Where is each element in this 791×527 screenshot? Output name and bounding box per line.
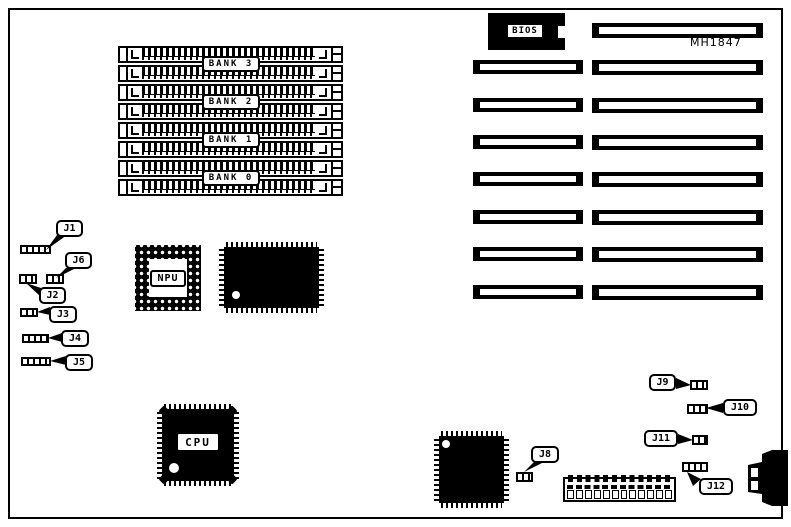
jumper-label-J11: J11 bbox=[644, 430, 678, 447]
jumper-J12-pins bbox=[682, 462, 708, 472]
power-connector-pins bbox=[568, 475, 671, 482]
bios-notch bbox=[558, 26, 565, 38]
expansion-slot bbox=[473, 210, 583, 224]
bios-label: BIOS bbox=[508, 25, 542, 37]
expansion-slot bbox=[473, 98, 583, 112]
jumper-J5-pins bbox=[21, 357, 51, 366]
pin1-dot bbox=[442, 440, 450, 448]
expansion-slot bbox=[592, 172, 763, 187]
bank-label: BANK 1 bbox=[202, 132, 260, 148]
jumper-J10-pins bbox=[687, 404, 708, 414]
jumper-label-J2: J2 bbox=[39, 287, 66, 304]
pin1-dot bbox=[169, 463, 179, 473]
power-connector-bar bbox=[567, 485, 672, 489]
jumper-J8-pins bbox=[516, 472, 533, 482]
expansion-slot bbox=[473, 135, 583, 149]
power-connector bbox=[563, 477, 676, 502]
qfp-chip bbox=[434, 431, 509, 508]
keyboard-connector-notch bbox=[751, 481, 758, 490]
bank-label: BANK 2 bbox=[202, 94, 260, 110]
jumper-J4-pins bbox=[22, 334, 49, 343]
qfp-chip bbox=[219, 242, 324, 313]
expansion-slot bbox=[473, 172, 583, 186]
expansion-slot bbox=[473, 247, 583, 261]
cpu-chip: CPU bbox=[157, 404, 239, 486]
keyboard-connector-body bbox=[748, 450, 788, 506]
jumper-label-J4: J4 bbox=[61, 330, 89, 347]
jumper-label-J1: J1 bbox=[56, 220, 83, 237]
jumper-J1-pins bbox=[20, 245, 51, 254]
bank-label: BANK 0 bbox=[202, 170, 260, 186]
expansion-slot bbox=[592, 23, 763, 38]
jumper-J3-pins bbox=[20, 308, 38, 317]
expansion-slot bbox=[473, 285, 583, 299]
npu-socket: NPU bbox=[135, 245, 201, 311]
jumper-label-J5: J5 bbox=[65, 354, 93, 371]
expansion-slot bbox=[592, 210, 763, 225]
expansion-slot bbox=[592, 98, 763, 113]
jumper-label-J6: J6 bbox=[65, 252, 92, 269]
jumper-label-J8: J8 bbox=[531, 446, 559, 463]
keyboard-connector bbox=[748, 450, 788, 506]
jumper-J9-pins bbox=[690, 380, 708, 390]
power-connector-cells bbox=[567, 490, 672, 499]
jumper-label-J12: J12 bbox=[699, 478, 733, 495]
expansion-slot bbox=[592, 247, 763, 262]
expansion-slot bbox=[592, 60, 763, 75]
cpu-label: CPU bbox=[176, 432, 220, 452]
bios-chip: BIOS bbox=[488, 13, 565, 50]
expansion-slot bbox=[592, 285, 763, 300]
jumper-label-J9: J9 bbox=[649, 374, 676, 391]
motherboard-diagram: BANK 3 BANK 2 BANK 1 BANK 0 BIOS MH1847 … bbox=[0, 0, 791, 527]
expansion-slot bbox=[592, 135, 763, 150]
jumper-label-J10: J10 bbox=[723, 399, 757, 416]
expansion-slot bbox=[473, 60, 583, 74]
jumper-J6-pins bbox=[46, 274, 64, 284]
jumper-J11-pins bbox=[692, 435, 708, 445]
bank-label: BANK 3 bbox=[202, 56, 260, 72]
jumper-label-J3: J3 bbox=[49, 306, 77, 323]
pin1-dot bbox=[232, 291, 240, 299]
npu-label: NPU bbox=[150, 270, 186, 287]
keyboard-connector-notch bbox=[751, 468, 758, 477]
jumper-J2-pins bbox=[19, 274, 37, 284]
